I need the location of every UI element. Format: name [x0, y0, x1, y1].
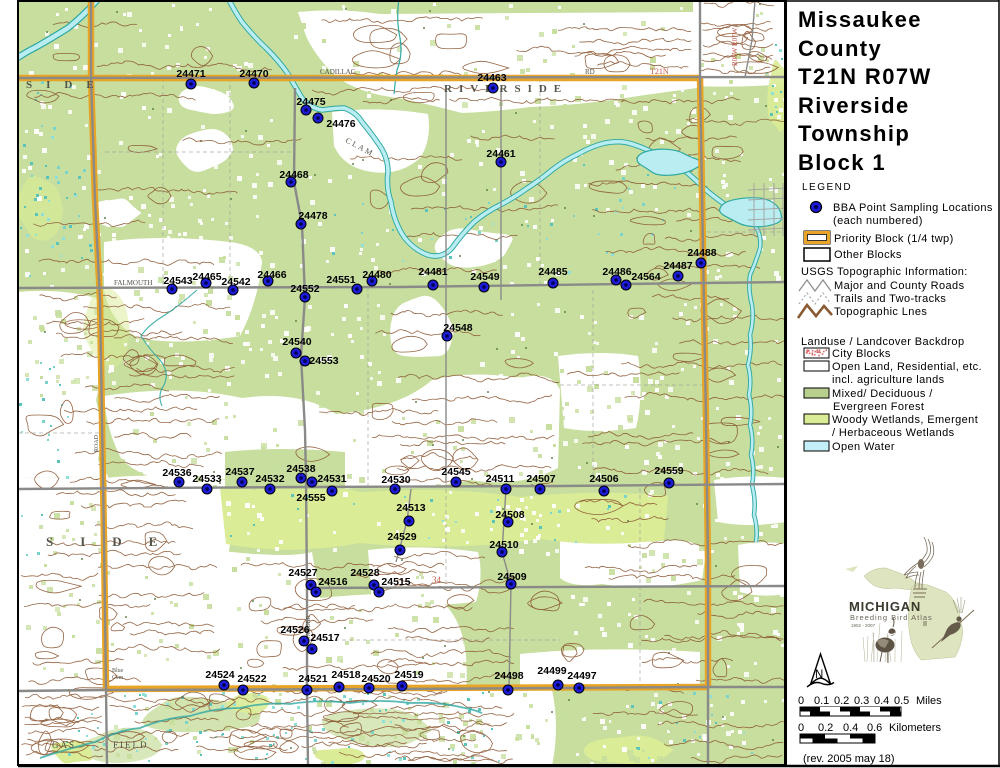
svg-text:24559: 24559 — [654, 465, 683, 477]
svg-text:0.2: 0.2 — [834, 695, 849, 707]
svg-text:Trails and Two-tracks: Trails and Two-tracks — [834, 293, 946, 305]
svg-text:0.5: 0.5 — [894, 695, 909, 707]
svg-text:24510: 24510 — [489, 539, 518, 551]
svg-text:24551: 24551 — [326, 274, 355, 286]
svg-text:24529: 24529 — [387, 531, 416, 543]
svg-text:Cem: Cem — [112, 675, 124, 681]
svg-text:R08W R07W: R08W R07W — [731, 27, 739, 66]
svg-text:24465: 24465 — [192, 271, 221, 283]
svg-text:24524: 24524 — [205, 669, 234, 681]
svg-text:Kilometers: Kilometers — [889, 722, 941, 734]
svg-text:0.6: 0.6 — [867, 722, 882, 734]
svg-text:Priority Block (1/4 twp): Priority Block (1/4 twp) — [834, 233, 954, 245]
svg-text:34: 34 — [432, 575, 442, 585]
svg-text:Mixed/ Deciduous /: Mixed/ Deciduous / — [832, 388, 933, 400]
svg-text:24487: 24487 — [663, 260, 692, 272]
svg-text:II: II — [923, 621, 927, 628]
svg-text:24507: 24507 — [526, 473, 555, 485]
svg-text:24555: 24555 — [296, 492, 325, 504]
svg-text:24522: 24522 — [237, 673, 266, 685]
svg-text:24545: 24545 — [441, 466, 470, 478]
svg-text:GAS: GAS — [52, 740, 76, 750]
svg-text:Evergreen Forest: Evergreen Forest — [833, 401, 924, 413]
svg-text:(rev. 2005 may 18): (rev. 2005 may 18) — [803, 753, 895, 765]
svg-text:24461: 24461 — [486, 148, 515, 160]
svg-text:24471: 24471 — [176, 68, 205, 80]
svg-text:0: 0 — [798, 722, 804, 734]
svg-text:Topographic Lnes: Topographic Lnes — [834, 306, 927, 318]
svg-text:1902 - 2007: 1902 - 2007 — [851, 623, 876, 628]
svg-text:24475: 24475 — [296, 96, 325, 108]
svg-text:24498: 24498 — [494, 670, 523, 682]
svg-text:/ Herbaceous Wetlands: / Herbaceous Wetlands — [832, 427, 955, 439]
svg-text:24552: 24552 — [290, 283, 319, 295]
svg-text:MICHIGAN: MICHIGAN — [849, 599, 921, 614]
svg-text:24531: 24531 — [317, 473, 346, 485]
svg-text:24517: 24517 — [310, 632, 339, 644]
svg-text:T21N: T21N — [650, 67, 669, 76]
svg-text:LEGEND: LEGEND — [802, 182, 852, 193]
svg-text:24480: 24480 — [362, 269, 391, 281]
svg-text:24515: 24515 — [381, 576, 410, 588]
svg-text:24533: 24533 — [192, 473, 221, 485]
svg-text:24466: 24466 — [257, 269, 286, 281]
svg-text:USGS Topographic Information:: USGS Topographic Information: — [801, 266, 968, 278]
svg-text:24532: 24532 — [255, 473, 284, 485]
svg-text:24526: 24526 — [280, 624, 309, 636]
svg-text:Open Water: Open Water — [832, 441, 895, 453]
svg-text:Riverside: Riverside — [798, 93, 910, 118]
svg-text:24528: 24528 — [350, 567, 379, 579]
svg-text:incl. agriculture lands: incl. agriculture lands — [832, 374, 945, 386]
svg-text:(each numbered): (each numbered) — [833, 215, 923, 227]
svg-text:24511: 24511 — [486, 473, 515, 485]
svg-text:Township: Township — [798, 121, 910, 146]
svg-text:24497: 24497 — [567, 670, 596, 682]
svg-text:0.4: 0.4 — [874, 695, 889, 707]
svg-text:24463: 24463 — [477, 72, 506, 84]
svg-text:24538: 24538 — [286, 463, 315, 475]
svg-text:BBA Point Sampling Locations: BBA Point Sampling Locations — [833, 202, 993, 214]
svg-text:24553: 24553 — [309, 355, 338, 367]
svg-text:0: 0 — [798, 695, 804, 707]
svg-text:24516: 24516 — [318, 576, 347, 588]
svg-text:0.3: 0.3 — [854, 695, 869, 707]
svg-text:Missaukee: Missaukee — [798, 7, 922, 32]
svg-text:Major and County Roads: Major and County Roads — [834, 280, 965, 292]
svg-text:Breeding Bird Atlas: Breeding Bird Atlas — [850, 613, 933, 622]
svg-text:24543: 24543 — [163, 275, 192, 287]
svg-text:24542: 24542 — [221, 276, 250, 288]
svg-text:ROAD: ROAD — [94, 434, 100, 452]
svg-text:24513: 24513 — [396, 502, 425, 514]
svg-text:County: County — [798, 36, 882, 61]
svg-text:0.1: 0.1 — [814, 695, 829, 707]
svg-text:24481: 24481 — [418, 266, 447, 278]
svg-text:Landuse / Landcover Backdrop: Landuse / Landcover Backdrop — [801, 336, 964, 348]
svg-text:Block 1: Block 1 — [798, 150, 886, 175]
svg-text:24537: 24537 — [225, 466, 254, 478]
svg-text:24476: 24476 — [326, 118, 355, 130]
svg-text:24548: 24548 — [443, 322, 472, 334]
svg-text:24485: 24485 — [538, 266, 567, 278]
svg-text:SIDE: SIDE — [26, 79, 108, 91]
svg-text:24527: 24527 — [288, 567, 317, 579]
svg-text:FALMOUTH: FALMOUTH — [114, 279, 152, 287]
svg-text:Woody Wetlands, Emergent: Woody Wetlands, Emergent — [832, 414, 978, 426]
svg-text:24536: 24536 — [162, 467, 191, 479]
svg-text:24518: 24518 — [331, 669, 360, 681]
svg-text:Open Land, Residential, etc.: Open Land, Residential, etc. — [832, 361, 982, 373]
svg-text:N: N — [815, 669, 823, 681]
svg-text:T21N R07W: T21N R07W — [798, 64, 932, 89]
svg-text:Other Blocks: Other Blocks — [834, 249, 902, 261]
svg-text:RD: RD — [585, 68, 595, 76]
svg-text:24488: 24488 — [687, 247, 716, 259]
svg-text:CADILLAC: CADILLAC — [320, 68, 356, 76]
svg-text:24499: 24499 — [537, 665, 566, 677]
svg-text:24509: 24509 — [497, 571, 526, 583]
svg-text:RIVERSIDE: RIVERSIDE — [444, 83, 568, 95]
svg-text:0.2: 0.2 — [818, 722, 833, 734]
svg-text:City Blocks: City Blocks — [832, 348, 891, 360]
svg-text:24521: 24521 — [298, 673, 327, 685]
svg-text:24506: 24506 — [589, 473, 618, 485]
svg-text:24549: 24549 — [470, 271, 499, 283]
svg-text:Miles: Miles — [916, 695, 942, 707]
svg-text:24520: 24520 — [361, 673, 390, 685]
svg-text:24530: 24530 — [381, 474, 410, 486]
svg-text:Blue: Blue — [112, 668, 124, 674]
svg-text:0.4: 0.4 — [843, 722, 858, 734]
svg-text:24519: 24519 — [394, 669, 423, 681]
svg-text:24470: 24470 — [239, 68, 268, 80]
svg-text:24564: 24564 — [631, 271, 660, 283]
svg-text:SIDE: SIDE — [46, 534, 184, 549]
svg-text:24468: 24468 — [279, 169, 308, 181]
svg-text:24486: 24486 — [602, 266, 631, 278]
svg-text:FIELD: FIELD — [113, 740, 149, 750]
svg-text:24540: 24540 — [282, 336, 311, 348]
svg-text:24478: 24478 — [298, 210, 327, 222]
svg-text:24508: 24508 — [495, 509, 524, 521]
